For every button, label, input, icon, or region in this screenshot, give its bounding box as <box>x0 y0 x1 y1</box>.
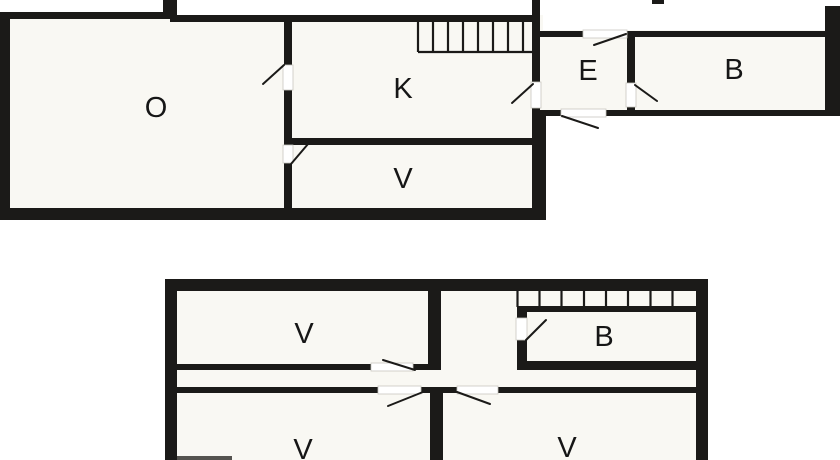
room-label-k: K <box>393 73 413 105</box>
room-label-e: E <box>578 55 597 87</box>
room-label-b: B <box>724 54 743 86</box>
floor-plan-figure: O K V E B <box>0 0 840 460</box>
room-label-b: B <box>594 321 613 353</box>
room-label-v-upper: V <box>294 318 314 350</box>
floor-plan-page: O K V E B <box>0 0 840 460</box>
room-label-o: O <box>145 92 168 124</box>
lower-floor-plan: V B V V <box>165 279 708 460</box>
room-label-v-right: V <box>557 432 577 460</box>
room-label-v-left: V <box>293 434 313 460</box>
room-label-v: V <box>393 163 413 195</box>
